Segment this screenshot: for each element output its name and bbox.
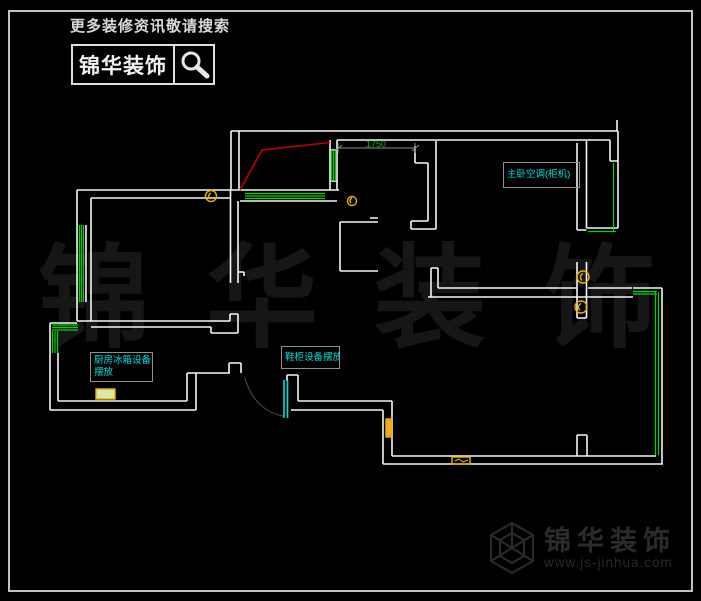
floorplan-drawing xyxy=(0,0,701,601)
socket-curl xyxy=(578,304,581,311)
kitchen-socket-symbol xyxy=(96,389,115,399)
dimension-value: 1750 xyxy=(354,139,398,149)
hex-cube-icon xyxy=(488,520,536,576)
annotation-shoe-cabinet: 鞋柜设备摆放 xyxy=(281,346,340,369)
annotation-text: 厨房冰箱设备 xyxy=(94,355,149,367)
cad-floorplan-page: 更多装修资讯敬请搜索 锦华装饰 锦 华 装 饰 xyxy=(0,0,701,601)
socket-symbol xyxy=(206,191,217,202)
door-swing-arc xyxy=(245,378,283,416)
entry-door xyxy=(245,378,288,418)
door-leaf xyxy=(284,380,288,418)
socket-symbol xyxy=(348,197,357,206)
tv-socket-squiggle xyxy=(455,459,468,462)
footer-url: www.js-jinhua.com xyxy=(544,555,676,570)
footer-brand: 锦华装饰 xyxy=(544,527,676,555)
socket-curl xyxy=(580,274,583,281)
footer-logo: 锦华装饰 www.js-jinhua.com xyxy=(488,516,693,580)
annotation-text: 摆放 xyxy=(94,367,149,379)
annotation-kitchen-fridge: 厨房冰箱设备 摆放 xyxy=(90,352,153,382)
annotation-text: 主卧空调(柜机) xyxy=(507,169,576,181)
red-guide-line xyxy=(240,143,330,191)
wall-socket-symbol xyxy=(386,419,392,437)
annotation-bedroom-ac: 主卧空调(柜机) xyxy=(503,162,580,188)
socket-curl xyxy=(350,198,352,203)
annotation-text: 鞋柜设备摆放 xyxy=(285,352,336,364)
